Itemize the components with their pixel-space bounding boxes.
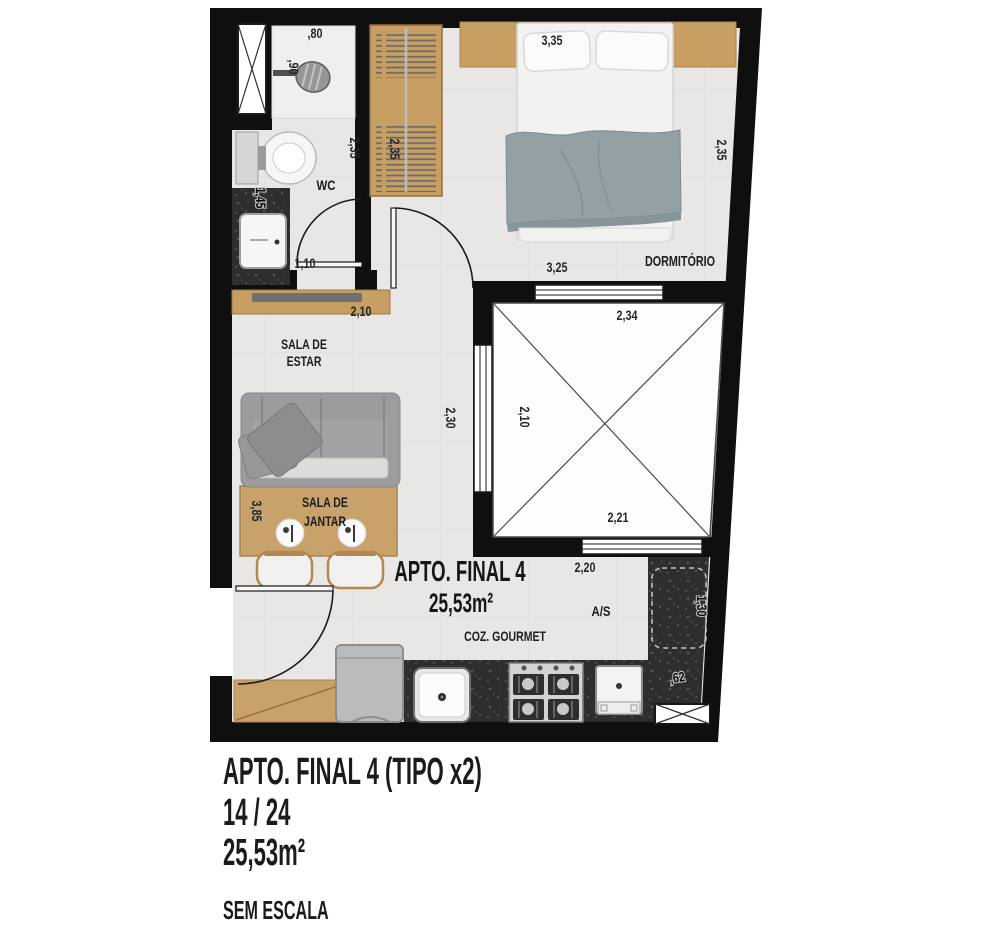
floor-plan-svg: ,80 ,90 2,35 2,35 3,35 2,35 1,45 1,10 3,… [0,0,1000,928]
wardrobe [370,25,442,196]
cooktop [509,663,583,722]
plan-unit-area: 25,53m² [429,587,494,618]
window-sala [474,345,492,492]
bath-faucet-icon [275,240,280,245]
laundry-tub [596,666,642,714]
sofa [237,393,400,487]
dim-bath-counter: 1,45 [253,187,268,208]
bed-sheet [519,228,671,242]
pillow [595,31,668,71]
fridge [336,645,403,722]
chair [328,552,383,588]
plan-unit-title: APTO. FINAL 4 [394,556,526,588]
room-label-sala-jantar: JANTAR [304,514,346,530]
dim-hall: 1,10 [294,256,315,271]
room-label-area-servico: A/S [591,604,610,619]
duct-shaft [238,24,266,114]
toilet-hinge [258,146,266,170]
dim-closet-length: 2,35 [387,138,402,159]
wall-wc-south-block [360,270,377,290]
entry-cabinet [234,680,352,722]
entry-opening [205,588,233,676]
place-setting [276,519,304,547]
room-label-wc: WC [316,178,335,193]
chair [257,552,312,588]
dim-void-top: 2,34 [616,308,637,323]
dim-dorm-depth: 2,35 [714,139,729,160]
dim-kitchen-run: 2,20 [574,560,595,575]
room-label-dormitorio: DORMITÓRIO [645,252,715,269]
vent-shaft [655,704,710,724]
room-label-sala-jantar: SALA DE [302,495,348,511]
caption-title: APTO. FINAL 4 (TIPO x2) [223,751,482,794]
dim-shower-width: ,80 [307,26,322,41]
dim-void-bottom: 2,21 [607,510,628,525]
dim-counter-depth: ,62 [669,669,686,686]
dim-wc-length: 2,35 [347,137,362,158]
room-label-sala-estar: ESTAR [287,354,322,370]
tv [252,293,362,302]
caption-scale-note: SEM ESCALA [223,895,329,926]
dim-laundry: 1,30 [694,595,709,616]
dim-rack: 2,10 [350,304,371,319]
kitchen-sink [414,668,470,722]
caption-units: 14 / 24 [223,792,290,835]
dim-sala-depth: 2,30 [443,407,458,428]
dim-dorm-width: 3,25 [546,260,567,275]
dim-jantar: 3,85 [249,500,264,521]
wall-bath-closet [355,28,371,290]
toilet-tank [236,132,258,184]
window-cozinha [582,539,702,554]
service-counter [648,557,709,722]
room-label-cozinha: COZ. GOURMET [464,629,546,645]
room-label-sala-estar: SALA DE [281,337,327,353]
caption-area: 25,53m² [223,832,305,875]
dim-void-left: 2,10 [517,406,532,427]
window-dormitorio [535,285,663,300]
dim-shower-depth: ,90 [286,59,301,74]
toilet-bowl-inner [273,143,305,173]
dim-bed-wall: 3,35 [541,33,562,48]
floorplan-page: ,80 ,90 2,35 2,35 3,35 2,35 1,45 1,10 3,… [0,0,1000,928]
bed-blanket [506,130,681,224]
